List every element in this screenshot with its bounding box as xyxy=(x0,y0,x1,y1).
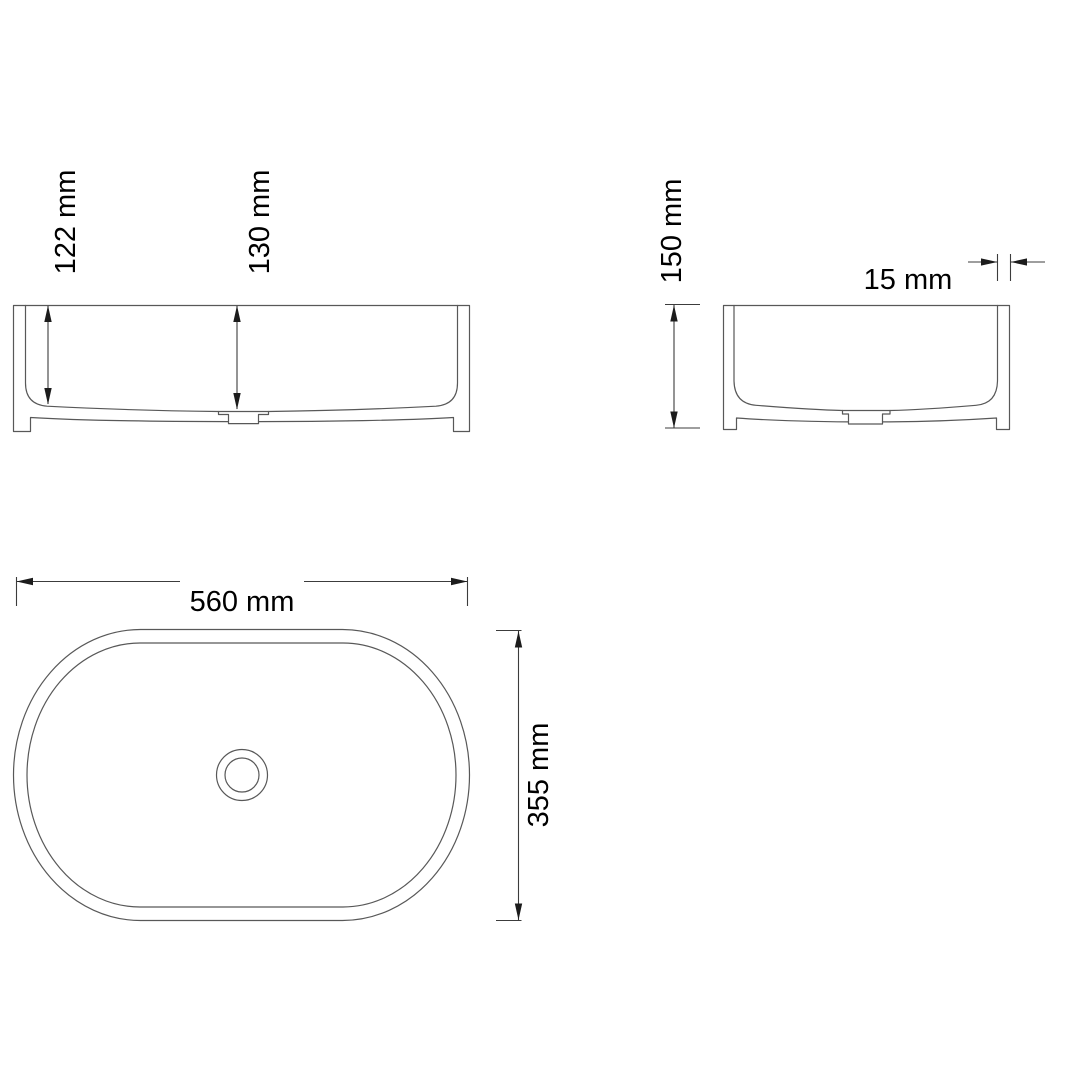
front-outer-outline xyxy=(14,306,470,432)
plan-outer-rim xyxy=(14,630,470,921)
drawing-sheet: 122 mm 130 mm 150 mm 15 mm 560 mm 355 mm xyxy=(0,0,1080,1080)
side-drain-detail xyxy=(843,411,891,422)
dim-label-overall-depth: 355 mm xyxy=(523,695,555,855)
dim-560-arrow-right xyxy=(451,578,468,585)
side-inner-bowl-left xyxy=(734,306,843,411)
front-inner-bowl-left xyxy=(26,306,219,412)
dim-122-arrow-down xyxy=(44,388,51,405)
dim-122-arrow-up xyxy=(44,306,51,323)
dim-15-arrow-left xyxy=(1011,258,1028,265)
side-inner-bowl-right xyxy=(890,306,998,411)
plan-view xyxy=(14,577,523,921)
dim-label-overall-height: 150 mm xyxy=(656,151,688,311)
plan-drain-inner-circle xyxy=(225,758,259,792)
front-inner-bowl-right xyxy=(269,306,458,412)
dim-label-wall-thickness: 15 mm xyxy=(828,264,988,296)
dim-150-arrow-down xyxy=(670,412,677,429)
front-drain-detail xyxy=(219,412,269,422)
plan-drain-outer-circle xyxy=(217,750,268,801)
dim-560-arrow-left xyxy=(17,578,34,585)
dim-150-line xyxy=(665,305,700,429)
dim-label-overall-width: 560 mm xyxy=(162,586,322,618)
dim-355-lines xyxy=(496,631,522,921)
technical-drawing-canvas xyxy=(0,0,1080,1080)
plan-inner-rim xyxy=(27,643,456,907)
dim-130-arrow-down xyxy=(233,393,240,410)
dim-130-arrow-up xyxy=(233,306,240,323)
dim-label-drain-depth: 130 mm xyxy=(244,142,276,302)
dim-355-arrow-up xyxy=(515,631,522,648)
front-elevation-view xyxy=(14,306,470,432)
dim-label-inner-depth: 122 mm xyxy=(50,142,82,302)
dim-355-arrow-down xyxy=(515,904,522,921)
